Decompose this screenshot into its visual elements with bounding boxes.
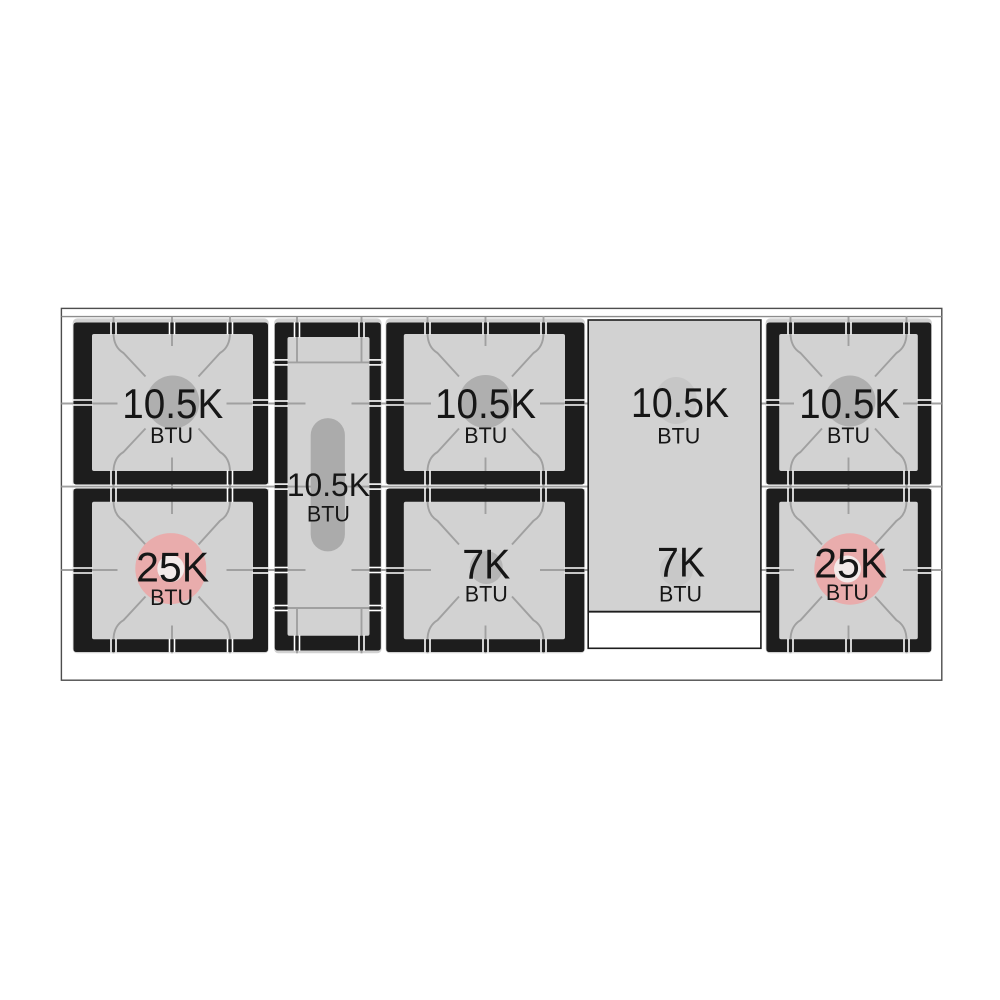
- svg-text:BTU: BTU: [150, 423, 193, 448]
- svg-text:BTU: BTU: [657, 423, 700, 448]
- svg-text:BTU: BTU: [827, 423, 870, 448]
- svg-text:BTU: BTU: [150, 585, 193, 610]
- svg-text:BTU: BTU: [659, 582, 702, 607]
- svg-text:BTU: BTU: [826, 580, 869, 605]
- svg-text:10.5K: 10.5K: [631, 379, 729, 426]
- svg-text:10.5K: 10.5K: [122, 380, 223, 427]
- svg-text:7K: 7K: [462, 541, 510, 588]
- svg-text:10.5K: 10.5K: [799, 380, 900, 427]
- svg-text:7K: 7K: [657, 539, 705, 586]
- svg-text:BTU: BTU: [307, 502, 350, 527]
- svg-text:25K: 25K: [136, 543, 209, 590]
- svg-text:BTU: BTU: [465, 582, 508, 607]
- svg-text:10.5K: 10.5K: [287, 467, 370, 503]
- svg-text:BTU: BTU: [464, 423, 507, 448]
- svg-text:10.5K: 10.5K: [435, 380, 536, 427]
